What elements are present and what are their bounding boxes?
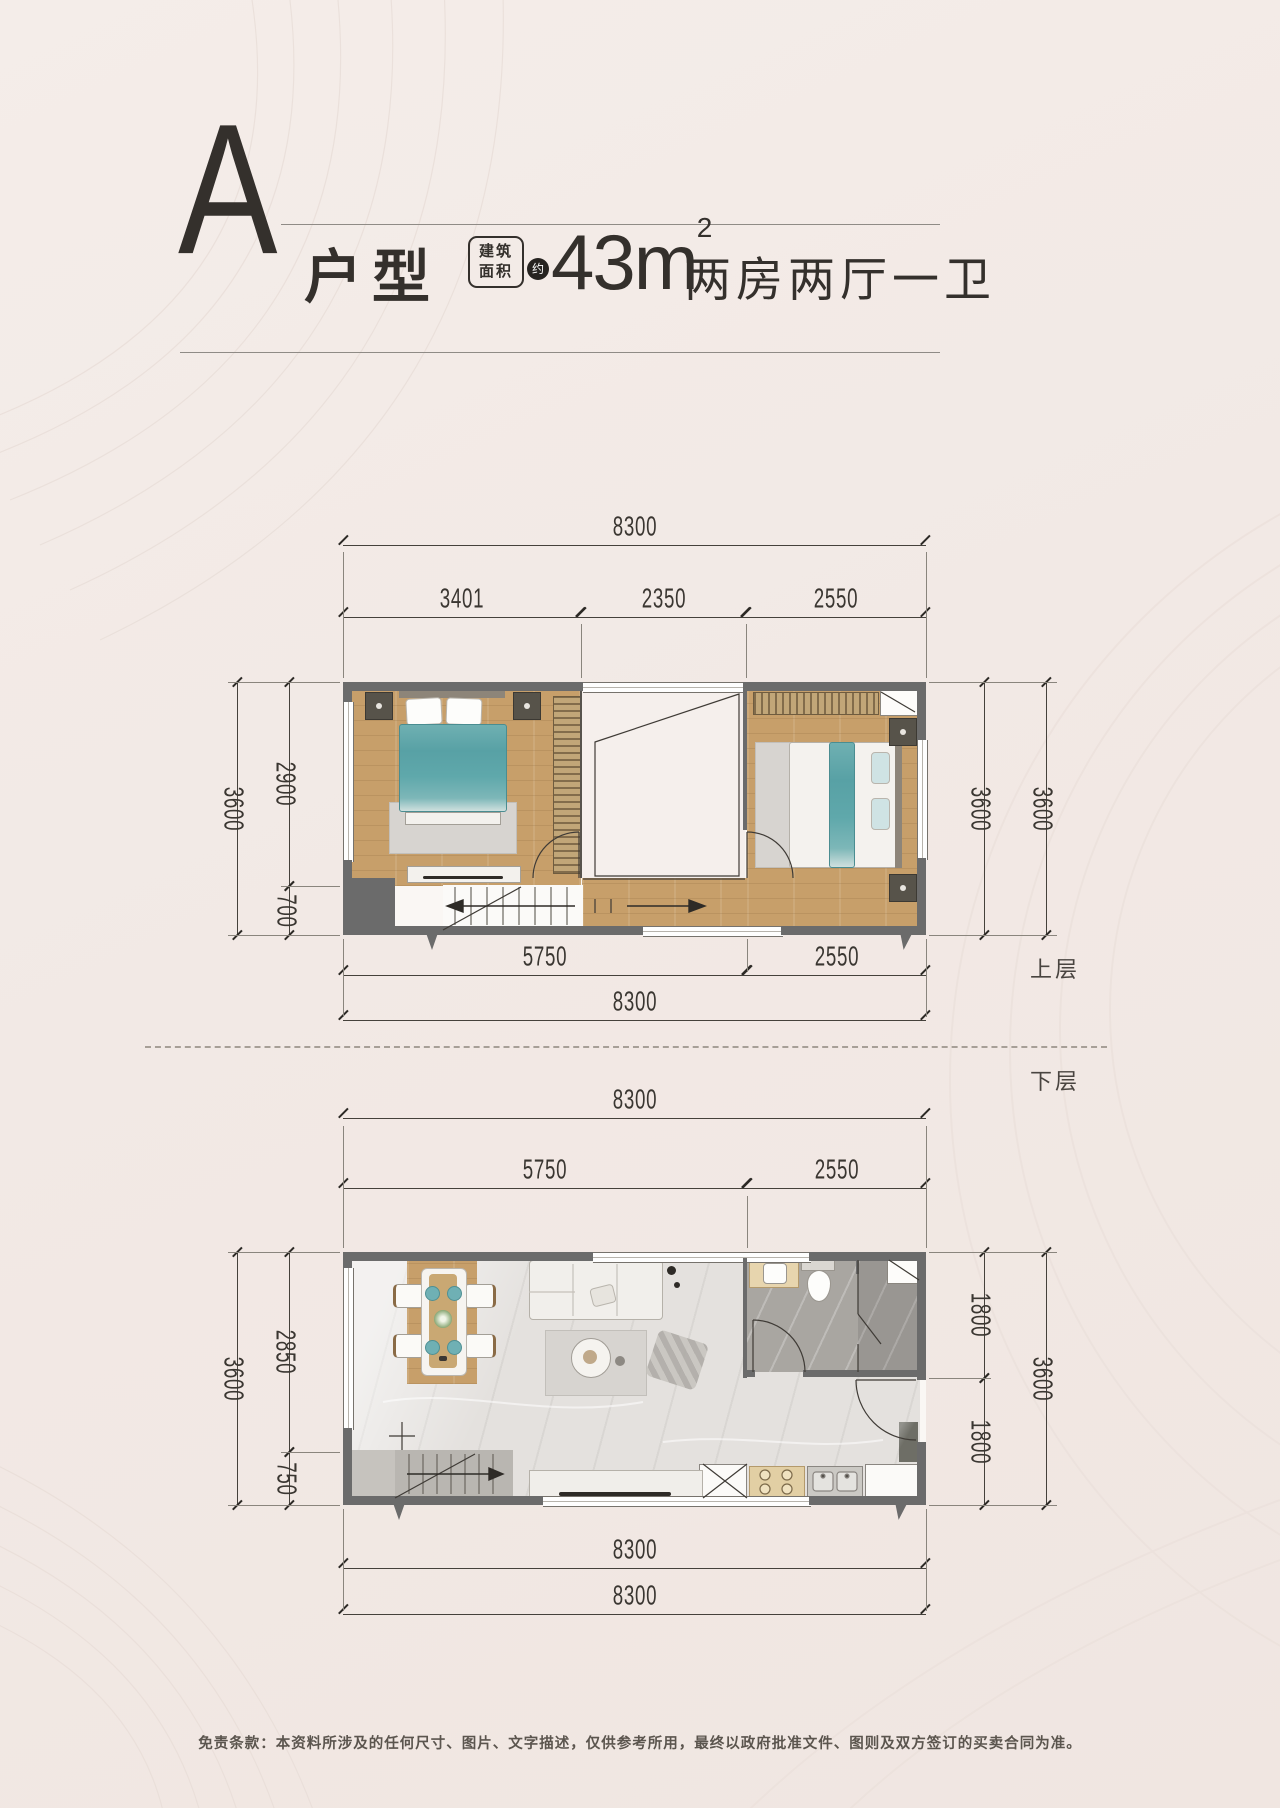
extension-line (747, 1196, 748, 1248)
dim-label: 750 (270, 1462, 303, 1495)
dim-lower-right-seg2: 1800 (984, 1378, 985, 1505)
extension-line (929, 682, 1057, 683)
extension-line (343, 1126, 344, 1248)
dim-upper-bottom-seg1: 5750 (343, 975, 747, 976)
area-badge-line1: 建筑 (479, 242, 513, 262)
dim-label: 3600 (964, 786, 997, 831)
dim-label: 8300 (612, 510, 657, 543)
dim-label: 1800 (964, 1293, 997, 1338)
marble-veins (383, 1398, 883, 1444)
upper-plan-linework (343, 682, 926, 935)
floorplan-flyer: A 户型 建筑 面积 约 43m2 两房两厅一卫 8300 3401 2350 … (0, 0, 1280, 1808)
dim-lower-top-seg2: 2550 (747, 1188, 926, 1189)
dim-label: 2850 (269, 1330, 302, 1375)
stove-burners (760, 1470, 792, 1494)
floor-divider (145, 1046, 1107, 1048)
dim-lower-bottom-inner: 8300 (343, 1568, 926, 1569)
sofa-cushion-lines (529, 1264, 617, 1316)
stair-direction-arrow (407, 1468, 503, 1480)
shelf-diagonal (881, 692, 915, 712)
shelf-diagonal (889, 1260, 919, 1280)
extension-line (281, 1452, 340, 1453)
upper-floor-plan (343, 682, 926, 935)
shower-door (858, 1314, 881, 1344)
dim-lower-bottom-outer: 8300 (343, 1614, 926, 1615)
entry-door (856, 1380, 916, 1440)
dim-label: 8300 (612, 1579, 657, 1612)
void-outline (595, 694, 739, 876)
extension-line (929, 1378, 991, 1379)
lower-plan-linework (343, 1252, 926, 1505)
dim-label: 8300 (612, 1083, 657, 1116)
hall-direction-arrow (627, 900, 705, 912)
upper-floor-label: 上层 (1030, 952, 1080, 984)
extension-line (581, 624, 582, 678)
wall-break-mark (392, 1500, 406, 1520)
extension-line (343, 939, 344, 1017)
dim-lower-top-seg1: 5750 (343, 1188, 747, 1189)
extension-line (228, 1252, 340, 1253)
dim-upper-top-seg3: 2550 (746, 617, 926, 618)
dim-label: 2900 (269, 762, 302, 807)
dim-upper-left-seg1: 2900 (289, 682, 290, 886)
bedroom2-door (747, 832, 793, 878)
dim-label: 5750 (523, 1153, 568, 1186)
dim-lower-right-outer: 3600 (1046, 1252, 1047, 1505)
double-sink (813, 1472, 857, 1491)
dim-label: 1800 (964, 1419, 997, 1464)
dim-upper-top-seg2: 2350 (581, 617, 746, 618)
extension-line (929, 935, 1057, 936)
area-badge-line2: 面积 (479, 262, 513, 282)
dim-label: 3600 (217, 1356, 250, 1401)
dim-upper-top-total: 8300 (343, 545, 926, 546)
dim-lower-left-outer: 3600 (237, 1252, 238, 1505)
extension-line (343, 552, 344, 678)
dim-upper-left-seg2: 700 (289, 886, 290, 935)
extension-line (926, 1126, 927, 1248)
dim-label: 8300 (612, 985, 657, 1018)
unit-letter: A (178, 96, 278, 282)
area-power: 2 (697, 212, 713, 243)
dim-label: 3600 (1026, 1356, 1059, 1401)
extension-line (926, 552, 927, 678)
dim-label: 2550 (814, 582, 859, 615)
extension-line (281, 886, 340, 887)
bathroom-door (753, 1320, 805, 1372)
approx-circle: 约 (527, 258, 549, 280)
stair-cut-line (395, 1454, 475, 1498)
dim-label: 2350 (641, 582, 686, 615)
dim-label: 3600 (217, 786, 250, 831)
dim-label: 8300 (612, 1533, 657, 1566)
area-number: 43 (551, 218, 634, 306)
dim-upper-bottom-seg2: 2550 (747, 975, 926, 976)
dim-lower-left-seg1: 2850 (289, 1252, 290, 1452)
lower-floor-plan (343, 1252, 926, 1505)
dim-upper-top-seg1: 3401 (343, 617, 581, 618)
dim-label: 5750 (523, 940, 568, 973)
extension-line (929, 1252, 1057, 1253)
stair-rail-mark (389, 1422, 415, 1450)
dim-label: 2550 (814, 940, 859, 973)
extension-line (343, 1509, 344, 1611)
dim-label: 3401 (440, 582, 485, 615)
area-badge: 建筑 面积 (468, 236, 524, 288)
extension-line (228, 1505, 340, 1506)
extension-line (929, 1505, 1057, 1506)
bedroom1-door (533, 832, 579, 878)
extension-line (926, 939, 927, 1017)
dim-upper-right-outer: 3600 (1046, 682, 1047, 935)
dim-lower-left-seg2: 750 (289, 1452, 290, 1505)
wall-break-mark (425, 930, 439, 950)
wall-break-mark (897, 929, 914, 951)
dim-label: 700 (270, 894, 303, 927)
title-rule-bottom (180, 352, 940, 353)
disclaimer-text: 免责条款：本资料所涉及的任何尺寸、图片、文字描述，仅供参考所用，最终以政府批准文… (0, 1732, 1280, 1753)
lower-floor-label: 下层 (1030, 1064, 1080, 1096)
dim-upper-left-outer: 3600 (237, 682, 238, 935)
extension-line (747, 939, 748, 972)
extension-line (926, 1509, 927, 1611)
wall-break-mark (892, 1499, 909, 1521)
dim-lower-right-seg1: 1800 (984, 1252, 985, 1378)
extension-line (228, 935, 340, 936)
dim-upper-right-inner: 3600 (984, 682, 985, 935)
unit-type-label: 户型 (304, 230, 440, 314)
dim-lower-top-total: 8300 (343, 1118, 926, 1119)
extension-line (228, 682, 340, 683)
extension-line (746, 624, 747, 678)
dim-label: 2550 (814, 1153, 859, 1186)
dim-label: 3600 (1026, 786, 1059, 831)
fridge-cross (703, 1464, 747, 1498)
dim-upper-bottom-total: 8300 (343, 1020, 926, 1021)
stair-direction-arrow (447, 900, 575, 912)
room-layout-label: 两房两厅一卫 (684, 241, 996, 310)
